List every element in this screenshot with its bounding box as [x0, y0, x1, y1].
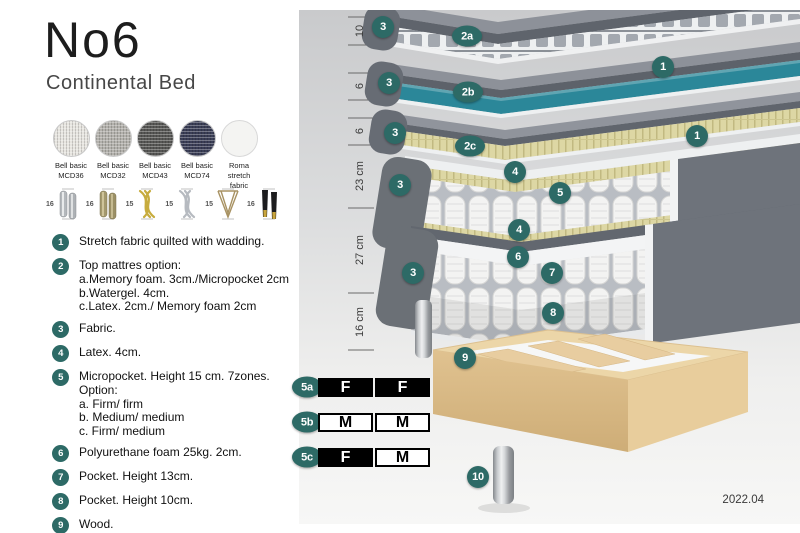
leg-options-row: 16 16 15: [46, 188, 281, 220]
list-item-badge: 2: [52, 258, 69, 275]
list-item-badge: 5: [52, 369, 69, 386]
fabric-swatch-label: Romastretch fabric: [218, 161, 260, 190]
firmness-cell: F: [375, 378, 430, 397]
fabric-swatch-label: Bell basicMCD74: [181, 161, 213, 181]
list-item-text: Polyurethane foam 25kg. 2cm.: [79, 445, 242, 459]
feature-list: 1 Stretch fabric quilted with wadding. 2…: [52, 234, 290, 533]
leg-icon-twisted-silver: [175, 188, 199, 220]
bed-diagram-panel: 10 6 6 23 cm 27 cm 16 cm 3 2a 1 3 2b 3 2…: [299, 10, 800, 524]
callout-2c: 2c: [455, 136, 485, 157]
leg-icon-twisted-gold: [135, 188, 159, 220]
callout-4-top: 4: [504, 161, 526, 183]
fabric-swatch-label: Bell basicMCD32: [97, 161, 129, 181]
leg-height-label: 15: [165, 201, 173, 208]
fabric-swatch-label: Bell basicMCD36: [55, 161, 87, 181]
list-item-badge: 1: [52, 234, 69, 251]
version-label: 2022.04: [722, 494, 764, 506]
list-item-text: Wood.: [79, 517, 113, 531]
callout-3-base: 3: [402, 262, 424, 284]
fabric-option: Bell basicMCD74: [176, 120, 218, 190]
fabric-swatch-icon: [179, 120, 216, 157]
callout-3-watergel: 3: [378, 72, 400, 94]
ruler-label-16cm: 16 cm: [354, 307, 366, 337]
ruler-label-10cm: 10: [354, 25, 366, 37]
ruler-label-27cm: 27 cm: [354, 235, 366, 265]
list-item-sublist: a. Firm/ firm b. Medium/ medium c. Firm/…: [79, 398, 290, 439]
list-item-4: 4 Latex. 4cm.: [52, 345, 290, 362]
callout-3-mid: 3: [389, 174, 411, 196]
callout-2a: 2a: [452, 26, 482, 47]
leg-height-label: 16: [86, 201, 94, 208]
fabric-swatch-row: Bell basicMCD36 Bell basicMCD32 Bell bas…: [50, 120, 260, 190]
list-item-badge: 4: [52, 345, 69, 362]
page-subtitle: Continental Bed: [46, 72, 196, 95]
leg-icon-cylinder-chrome: [56, 188, 80, 220]
ruler-label-23cm: 23 cm: [354, 161, 366, 191]
firmness-cell: M: [318, 413, 373, 432]
list-item-text: Pocket. Height 13cm.: [79, 469, 193, 483]
leg-icon-tapered-black-gold: [257, 188, 281, 220]
list-item-text: Latex. 4cm.: [79, 345, 141, 359]
callout-1-upper: 1: [652, 56, 674, 78]
callout-3-latex: 3: [384, 122, 406, 144]
leg-height-label: 15: [126, 201, 134, 208]
leg-option: 15: [205, 188, 241, 220]
callout-6: 6: [507, 246, 529, 268]
fabric-option: Bell basicMCD43: [134, 120, 176, 190]
info-panel: No6 Continental Bed Bell basicMCD36 Bell…: [0, 0, 296, 533]
list-item-badge: 8: [52, 493, 69, 510]
list-item-text: Pocket. Height 10cm.: [79, 493, 193, 507]
metal-leg-rear: [415, 300, 432, 358]
leg-height-label: 16: [247, 201, 255, 208]
callout-7: 7: [541, 262, 563, 284]
fabric-swatch-label: Bell basicMCD43: [139, 161, 171, 181]
list-item-badge: 9: [52, 517, 69, 533]
fabric-swatch-icon: [53, 120, 90, 157]
list-item-badge: 7: [52, 469, 69, 486]
list-item-sublist: a.Memory foam. 3cm./Micropocket 2cm b.Wa…: [79, 273, 289, 314]
leg-option: 15: [165, 188, 199, 220]
callout-2b: 2b: [453, 82, 483, 103]
fabric-option: Bell basicMCD32: [92, 120, 134, 190]
callout-10: 10: [467, 466, 489, 488]
list-item-text: Fabric.: [79, 321, 116, 335]
fabric-swatch-icon: [137, 120, 174, 157]
leg-option: 16: [46, 188, 80, 220]
wood-frame: [433, 330, 748, 452]
list-item-badge: 3: [52, 321, 69, 338]
list-item-6: 6 Polyurethane foam 25kg. 2cm.: [52, 445, 290, 462]
callout-8: 8: [542, 302, 564, 324]
fabric-option: Bell basicMCD36: [50, 120, 92, 190]
callout-5: 5: [549, 182, 571, 204]
callout-9: 9: [454, 347, 476, 369]
list-item-5: 5 Micropocket. Height 15 cm. 7zones. Opt…: [52, 369, 290, 439]
list-item-2: 2 Top mattres option: a.Memory foam. 3cm…: [52, 258, 290, 314]
list-item-9: 9 Wood.: [52, 517, 290, 533]
fabric-swatch-icon: [221, 120, 258, 157]
leg-option: 16: [86, 188, 120, 220]
list-item-text: Stretch fabric quilted with wadding.: [79, 234, 264, 248]
list-item-3: 3 Fabric.: [52, 321, 290, 338]
firmness-row-5c: F M: [318, 448, 430, 467]
fabric-option: Romastretch fabric: [218, 120, 260, 190]
leg-icon-hairpin: [215, 188, 241, 220]
callout-3-top: 3: [372, 16, 394, 38]
list-item-1: 1 Stretch fabric quilted with wadding.: [52, 234, 290, 251]
leg-height-label: 16: [46, 201, 54, 208]
fabric-swatch-icon: [95, 120, 132, 157]
firmness-cell: F: [318, 378, 373, 397]
leg-icon-cylinder-brass: [96, 188, 120, 220]
leg-height-label: 15: [205, 201, 213, 208]
page-title: No6: [44, 14, 142, 67]
list-item-7: 7 Pocket. Height 13cm.: [52, 469, 290, 486]
list-item-badge: 6: [52, 445, 69, 462]
list-item-text: Micropocket. Height 15 cm. 7zones. Optio…: [79, 369, 290, 439]
firmness-cell: M: [375, 413, 430, 432]
firmness-cell: M: [375, 448, 430, 467]
firmness-row-5a: F F: [318, 378, 430, 397]
ruler-label-6cm-a: 6: [354, 83, 366, 89]
firmness-row-5b: M M: [318, 413, 430, 432]
firmness-cell: F: [318, 448, 373, 467]
ruler-label-6cm-b: 6: [354, 128, 366, 134]
page: No6 Continental Bed Bell basicMCD36 Bell…: [0, 0, 800, 533]
callout-1-lower: 1: [686, 125, 708, 147]
list-item-8: 8 Pocket. Height 10cm.: [52, 493, 290, 510]
leg-option: 15: [126, 188, 160, 220]
leg-option: 16: [247, 188, 281, 220]
callout-4-bottom: 4: [508, 219, 530, 241]
list-item-text: Top mattres option: a.Memory foam. 3cm./…: [79, 258, 289, 314]
